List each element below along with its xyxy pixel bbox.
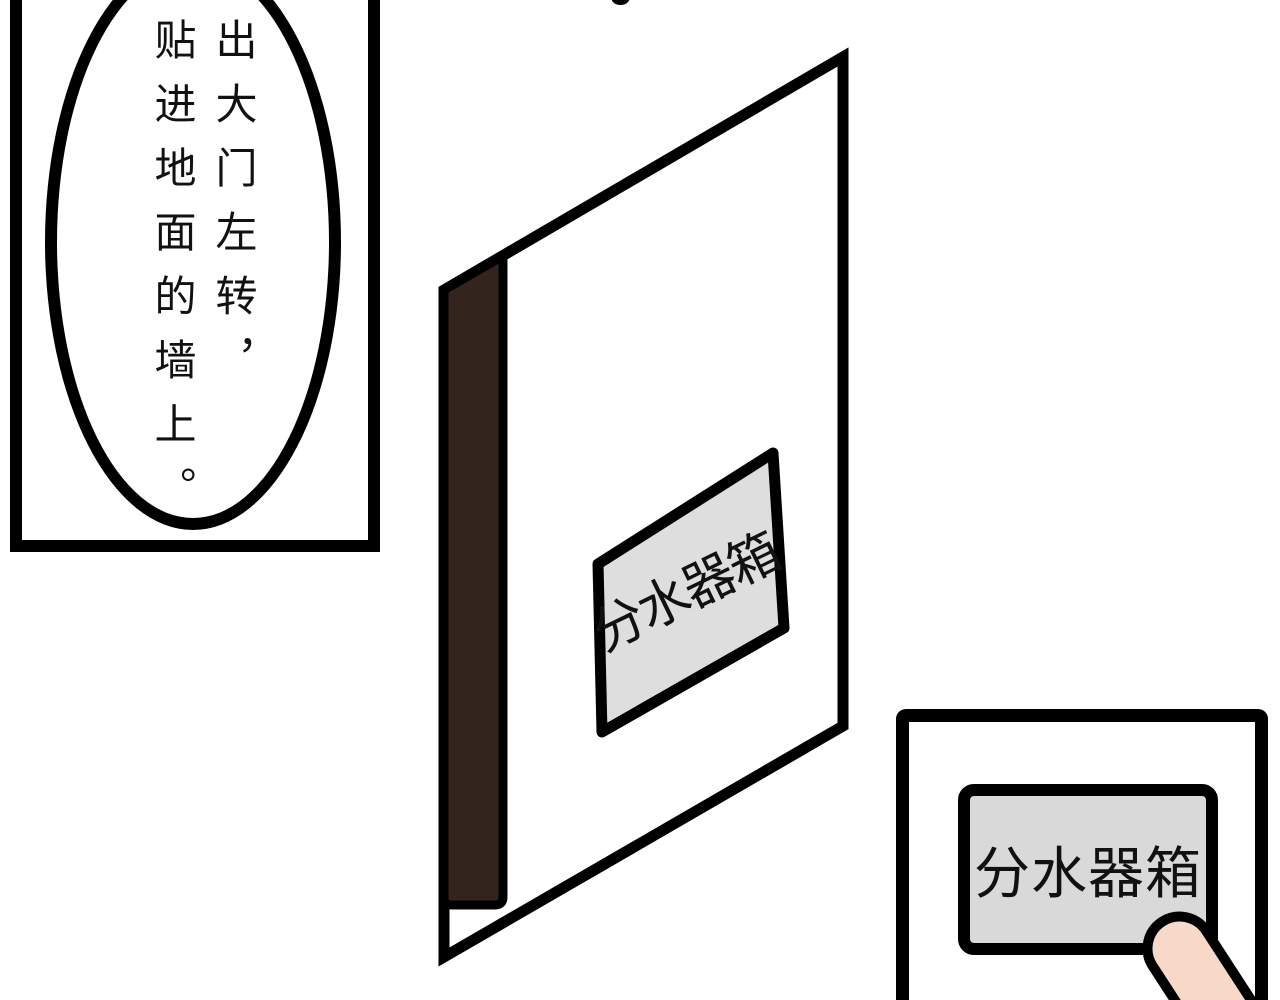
door-frame-strip: [444, 256, 503, 905]
inset-panel: 分水器箱: [896, 709, 1268, 1000]
comic-page: 出大门左转， 贴进地面的墙上。 分水器箱 分水器箱: [0, 0, 1280, 1000]
inset-sign-label: 分水器箱: [974, 829, 1202, 910]
top-edge-mark: [612, 0, 630, 5]
